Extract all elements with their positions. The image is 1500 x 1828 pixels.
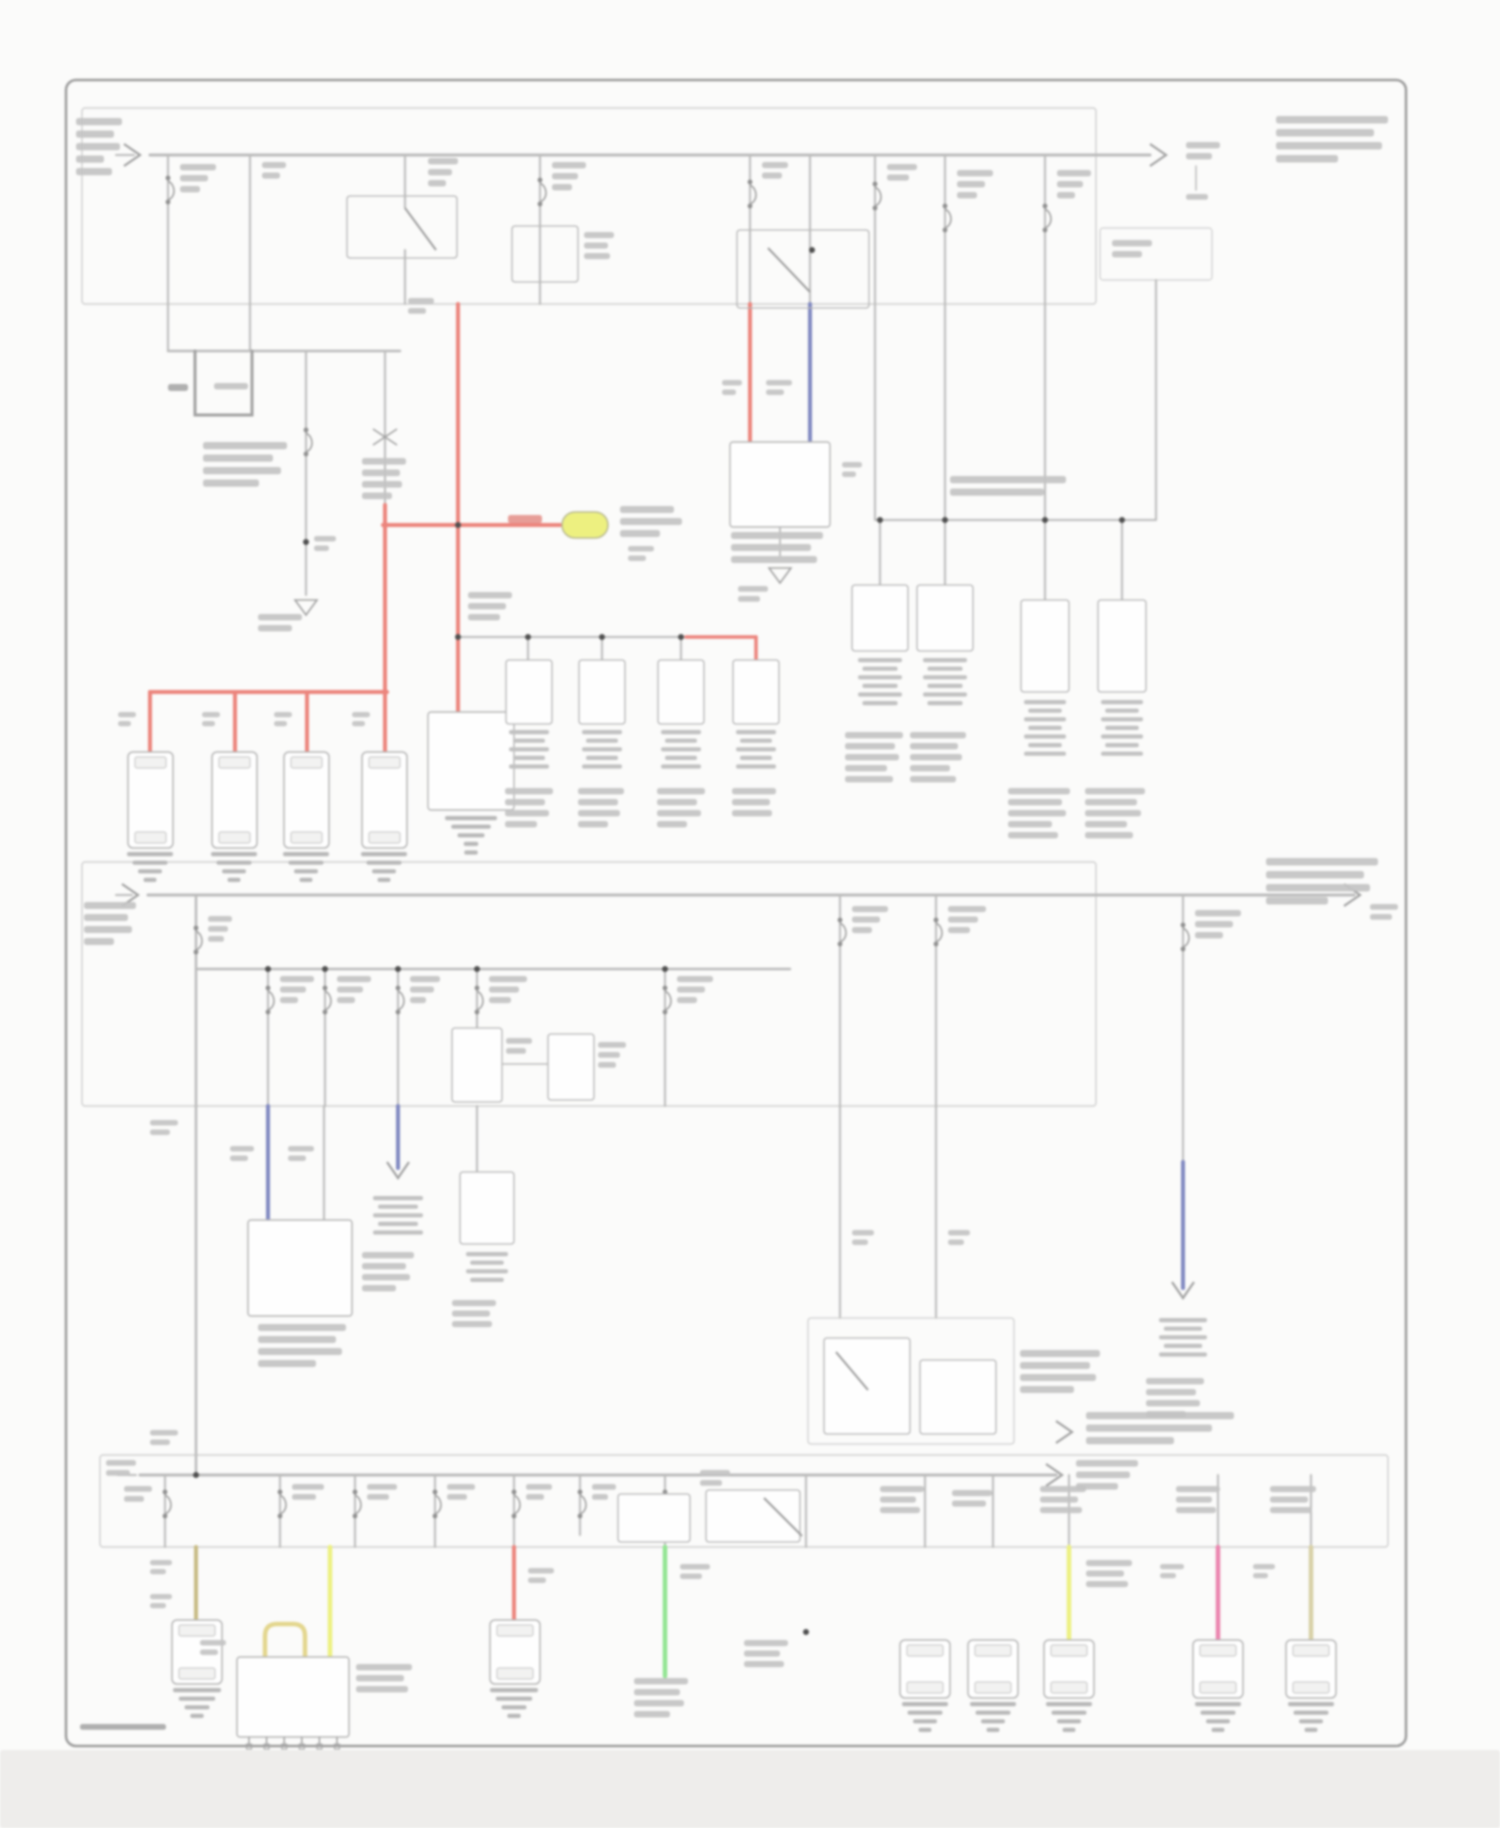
component-box [579,660,625,724]
ground-label-stack [1195,1702,1241,1732]
fuse-symbol [475,986,483,1015]
component-box [852,585,908,651]
component-box [512,226,578,282]
label-text-blurred [1085,788,1145,838]
label-text-blurred [452,1300,496,1327]
label-text-blurred [1020,1350,1100,1393]
coil-label-stack [923,658,967,705]
label-text-blurred [528,1568,554,1583]
coil-label-stack [1101,700,1143,756]
label-text-blurred [262,162,286,179]
junction-dot [599,634,605,640]
inline-connector-yellow [562,512,608,538]
fuse-symbol [323,986,331,1015]
ground-label-stack [1046,1702,1092,1732]
junction-dot [1119,517,1125,523]
fuse-cartridge [968,1640,1018,1698]
label-text-blurred [842,462,862,477]
fuse-symbol [873,182,881,211]
label-text-blurred [408,298,434,314]
label-text-blurred [447,1484,475,1500]
fuse-cartridge [212,752,257,848]
junction-dot [942,517,948,523]
power-wire-gold-loop [265,1624,305,1657]
label-text-blurred [84,902,136,945]
label-text-blurred [150,1560,172,1574]
label-text-blurred [1146,1378,1204,1417]
label-text-blurred [1112,240,1152,257]
component-box [428,712,514,810]
coil-label-stack [582,730,622,769]
fuse-symbol [838,918,846,947]
coil-label-stack [466,1252,508,1282]
fuse-symbol [1181,923,1189,952]
label-text-blurred [1076,1460,1138,1490]
label-text-blurred [208,916,232,942]
ground-label-stack [970,1702,1016,1732]
label-text-blurred [526,1484,552,1500]
label-text-blurred [118,712,136,726]
junction-dot [877,517,883,523]
label-text-blurred [1160,1564,1184,1578]
label-text-blurred [1186,194,1208,200]
label-text-blurred [762,162,788,179]
label-text-blurred [584,232,614,259]
label-text-blurred [731,532,823,563]
diagram-canvas [0,0,1500,1828]
component-box [506,660,552,724]
junction-dot [525,634,531,640]
label-text-blurred [845,732,903,782]
junction-dot [455,522,461,528]
junction-dot [803,1629,809,1635]
fuse-symbol [163,1490,171,1519]
label-text-blurred [489,976,527,1003]
label-text-blurred [124,1486,152,1502]
label-text-blurred [258,1324,346,1367]
label-text-blurred [738,586,768,602]
component-box [618,1494,690,1542]
label-text-blurred [732,788,776,816]
fuse-cartridge [1286,1640,1336,1698]
fuse-symbol [266,986,274,1015]
junction-dot [193,1472,199,1478]
label-text-blurred [1195,910,1241,938]
label-text-blurred [352,712,370,726]
label-text-blurred [744,1640,788,1667]
label-text-blurred [628,546,654,561]
section-arrow [1056,1421,1072,1443]
label-text-blurred [106,1460,136,1476]
label-text-blurred [700,1470,730,1486]
ground-label-stack [211,852,257,882]
coil-label-stack [373,1196,423,1235]
component-box [733,660,779,724]
label-text-blurred [950,476,1066,496]
fuse-cartridge [128,752,173,848]
ground-label-stack [445,816,497,855]
label-text-blurred [468,592,512,620]
label-text-blurred [203,442,287,487]
label-text-blurred [592,1484,616,1500]
label-text-blurred [1370,904,1398,920]
junction-dot [474,966,480,972]
label-text-blurred [506,1038,532,1054]
label-text-blurred [1086,1412,1234,1444]
label-text-blurred [258,614,302,631]
label-text-blurred [852,1230,874,1245]
fuse-cartridge [490,1620,540,1684]
fuse-symbol [396,986,404,1015]
ground-label-stack [173,1688,221,1718]
ground-label-stack [490,1688,538,1718]
power-distribution-wiring-diagram [0,0,1500,1828]
fuse-symbol [578,1490,586,1519]
fuse-symbol [943,204,951,233]
module-box [248,1220,352,1316]
label-text-blurred [634,1678,688,1717]
fuse-symbol [934,918,942,947]
fuse-symbol [353,1490,361,1519]
label-text-blurred [677,976,713,1003]
label-text-blurred [680,1564,710,1579]
label-text-blurred [1040,1486,1086,1513]
label-text-blurred [76,118,122,175]
fuse-symbol [538,178,546,207]
label-text-blurred [952,1490,992,1507]
label-text-blurred [274,712,292,726]
label-text-blurred [168,384,188,391]
fuse-cartridge [1193,1640,1243,1698]
junction-dot [265,966,271,972]
feed-arrow-connector [1150,144,1166,166]
fuse-symbol [1043,204,1051,233]
component-box [658,660,704,724]
fuse-cartridge [284,752,329,848]
relay-box [737,230,869,308]
component-box [1098,600,1146,692]
ground-symbol [295,600,317,615]
relay-box [347,196,457,258]
relay-box [920,1360,996,1434]
label-text-blurred [852,906,888,933]
label-text-blurred [948,1230,970,1245]
label-text-blurred [766,380,792,395]
switch-contact [768,248,810,292]
label-text-blurred [280,976,314,1003]
label-text-blurred [410,976,440,1003]
coil-label-stack [1159,1318,1207,1357]
relay-box [730,442,830,527]
label-text-blurred [657,788,705,827]
fuse-symbol [512,1490,520,1519]
component-box [548,1034,594,1100]
fuse-symbol [433,1490,441,1519]
label-text-blurred [1266,858,1378,905]
label-text-blurred [1186,142,1220,159]
ground-label-stack [902,1702,948,1732]
coil-label-stack [661,730,701,769]
label-text-blurred [1253,1564,1275,1578]
junction-dot [678,634,684,640]
junction-dot [455,634,461,640]
label-text-blurred [578,788,624,827]
label-text-blurred [230,1146,254,1161]
component-box [452,1028,502,1102]
label-text-blurred [356,1664,412,1692]
label-text-blurred [1270,1486,1316,1513]
label-text-blurred [552,162,586,190]
label-text-blurred [1276,116,1388,163]
ground-label-stack [283,852,329,882]
ground-label-stack [1288,1702,1334,1732]
switch-contact [405,208,436,250]
fuse-cartridge [1044,1640,1094,1698]
label-text-blurred [508,515,542,523]
component-box [1021,600,1069,692]
label-text-blurred [1086,1560,1132,1587]
junction-dot [303,539,309,545]
label-text-blurred [150,1594,172,1608]
label-text-blurred [948,906,986,933]
label-text-blurred [1176,1486,1220,1513]
component-box [460,1172,514,1244]
label-text-blurred [292,1484,324,1500]
fuse-symbol [748,180,756,209]
junction-dot [662,966,668,972]
fuse-symbol [166,176,174,205]
label-text-blurred [722,380,742,395]
label-text-blurred [314,536,336,551]
fuse-cartridge [900,1640,950,1698]
label-text-blurred [150,1120,178,1135]
label-text-blurred [1008,788,1070,838]
coil-label-stack [1024,700,1066,756]
relay-box [706,1490,800,1542]
ground-label-stack [361,852,407,882]
junction-dot [809,247,815,253]
junction-dot [322,966,328,972]
component-box [917,585,973,651]
ground-symbol [769,568,791,583]
coil-label-stack [858,658,902,705]
fuse-symbol [663,986,671,1015]
page-bottom-margin [0,1750,1500,1828]
junction-dot [395,966,401,972]
fuse-symbol [304,428,312,457]
module-box [237,1657,349,1749]
label-text-blurred [598,1042,626,1068]
junction-dot [1042,517,1048,523]
label-text-blurred [367,1484,397,1500]
scanned-wiring-page [0,0,1500,1828]
label-text-blurred [288,1146,314,1161]
label-text-blurred [214,383,248,389]
label-text-blurred [887,164,917,181]
label-text-blurred [180,164,216,192]
coil-label-stack [736,730,776,769]
footer-note-blurred [80,1724,166,1730]
label-text-blurred [880,1486,924,1513]
coil-label-stack [509,730,549,769]
label-text-blurred [202,712,220,726]
label-text-blurred [910,732,966,782]
label-text-blurred [620,506,682,537]
label-text-blurred [337,976,371,1003]
label-text-blurred [957,170,993,198]
label-text-blurred [362,1252,414,1291]
ground-label-stack [127,852,173,882]
fuse-cartridge [362,752,407,848]
label-text-blurred [428,158,458,186]
fuse-symbol [278,1490,286,1519]
label-text-blurred [1057,170,1091,198]
label-text-blurred [150,1430,178,1445]
